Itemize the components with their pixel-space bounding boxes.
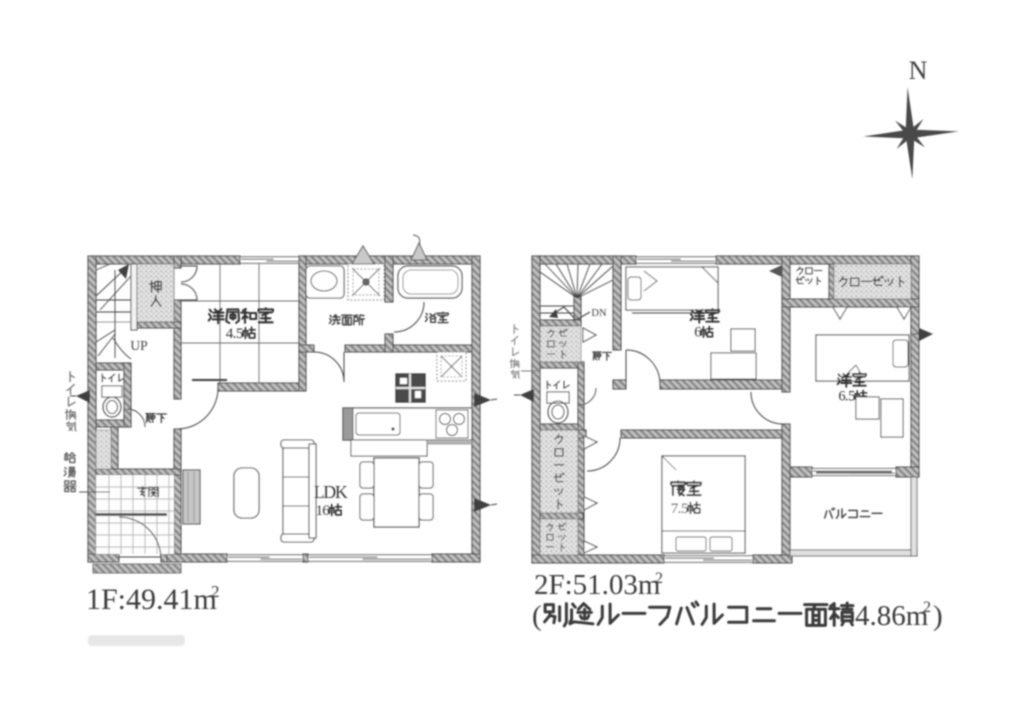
svg-text:2: 2 <box>923 599 931 616</box>
svg-text:4.86m: 4.86m <box>855 600 929 632</box>
svg-text:5: 5 <box>848 389 855 405</box>
svg-text:(: ( <box>532 600 542 632</box>
svg-text:6: 6 <box>694 325 701 341</box>
svg-text:N: N <box>909 56 928 85</box>
svg-text:2F:51.03m: 2F:51.03m <box>534 569 661 601</box>
svg-text:2: 2 <box>211 582 220 601</box>
svg-text:): ) <box>933 600 943 632</box>
svg-text:UP: UP <box>130 338 147 353</box>
svg-text:5: 5 <box>236 326 244 342</box>
svg-text:K: K <box>335 482 348 502</box>
svg-text:DN: DN <box>591 308 607 319</box>
svg-text:1F:49.41m: 1F:49.41m <box>86 583 217 616</box>
svg-text:2: 2 <box>655 570 663 587</box>
svg-text:5: 5 <box>681 501 689 517</box>
